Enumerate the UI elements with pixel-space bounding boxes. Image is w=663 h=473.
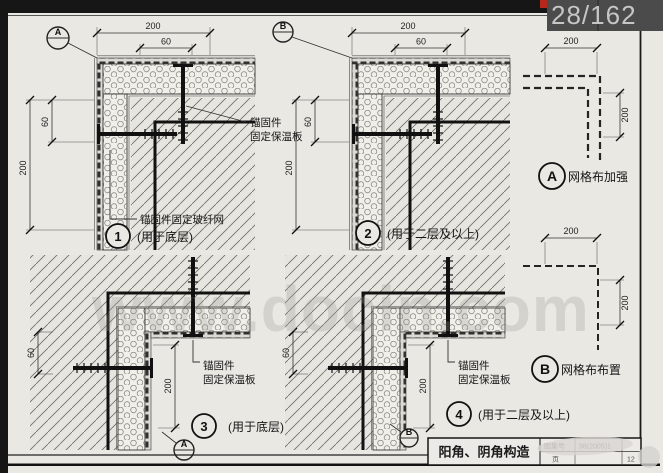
- d1-number-marker: 1: [106, 224, 130, 248]
- d3-dim-mid: 200: [153, 341, 180, 432]
- d3-callout-marker: A: [162, 432, 194, 460]
- titleblock-page-label: 页: [552, 456, 559, 464]
- d3-number-marker: 3: [192, 414, 216, 438]
- svg-text:60: 60: [281, 348, 291, 358]
- detail-4: 60 200 锚固件 固定保温板 4 (用于二层及以上): [281, 255, 570, 450]
- detail-1: A 200 60: [18, 21, 303, 250]
- svg-text:锚固件: 锚固件: [203, 359, 235, 372]
- mesh-a-marker: A: [539, 163, 565, 189]
- d4-annotation-anchor: 锚固件 固定保温板: [448, 340, 511, 386]
- svg-text:200: 200: [620, 295, 630, 310]
- d4-caption: (用于二层及以上): [478, 408, 570, 422]
- d3-annotation-anchor: 锚固件 固定保温板: [193, 340, 256, 386]
- d2-number: 2: [364, 226, 371, 241]
- d2-dim-top-inner: 60: [391, 37, 451, 56]
- d4-callout-letter: B: [406, 427, 413, 437]
- svg-text:60: 60: [161, 37, 171, 47]
- svg-text:200: 200: [418, 378, 428, 393]
- d3-callout-letter: A: [181, 439, 188, 449]
- mesh-detail-b: 200 200 B 网格布布置: [523, 226, 630, 382]
- scan-edge-strip: [0, 0, 8, 473]
- d4-number-marker: 4: [447, 402, 471, 426]
- svg-text:200: 200: [400, 21, 415, 31]
- mesh-b-marker: B: [532, 356, 558, 382]
- d2-caption: (用于二层及以上): [387, 227, 479, 241]
- scan-smudge-2: [638, 446, 660, 468]
- d2-number-marker: 2: [356, 221, 380, 245]
- d3-number: 3: [200, 419, 207, 434]
- svg-text:200: 200: [18, 160, 28, 175]
- d1-dim-left: 200: [18, 96, 94, 234]
- d2-callout-letter: B: [280, 21, 287, 31]
- svg-text:200: 200: [163, 378, 173, 393]
- d1-callout-marker: A: [47, 27, 97, 58]
- d2-callout-marker: B: [273, 21, 352, 58]
- svg-text:60: 60: [40, 117, 50, 127]
- title-block: 阳角、阴角构造 图集号 98(2005)1 页 12: [428, 435, 660, 468]
- red-corner-mark: [540, 0, 547, 8]
- svg-text:锚固件固定玻纤网: 锚固件固定玻纤网: [140, 213, 224, 226]
- svg-text:60: 60: [26, 348, 36, 358]
- svg-text:60: 60: [416, 37, 426, 47]
- svg-text:锚固件: 锚固件: [458, 359, 490, 372]
- page-counter: 28/162: [551, 0, 661, 31]
- mesh-a-dim-right: 200: [603, 89, 630, 141]
- mesh-a-label: 网格布加强: [568, 169, 628, 184]
- mesh-b-dim-top: 200: [541, 226, 601, 264]
- d2-dim-top: 200: [348, 21, 469, 55]
- mesh-a-dim-top: 200: [541, 36, 601, 74]
- svg-text:60: 60: [303, 117, 313, 127]
- d1-caption: (用于底层): [137, 229, 193, 244]
- svg-text:200: 200: [145, 21, 160, 31]
- d1-dim-top: 200: [93, 21, 214, 55]
- mesh-b-label: 网格布布置: [561, 362, 621, 377]
- svg-text:200: 200: [563, 36, 578, 46]
- svg-text:固定保温板: 固定保温板: [250, 130, 303, 143]
- svg-text:固定保温板: 固定保温板: [458, 373, 511, 386]
- d3-caption: (用于底层): [228, 419, 284, 434]
- titleblock-title: 阳角、阴角构造: [438, 445, 530, 460]
- detail-2: B 200 60: [273, 21, 510, 250]
- svg-text:200: 200: [620, 107, 630, 122]
- d2-dim-left-inner: 60: [303, 96, 349, 146]
- svg-text:200: 200: [563, 226, 578, 236]
- svg-text:固定保温板: 固定保温板: [203, 373, 256, 386]
- detail-3: 60 200 锚固件 固定保温板 3 (用于底层): [26, 255, 284, 460]
- d1-callout-letter: A: [55, 27, 62, 37]
- d1-dim-left-inner: 60: [40, 96, 94, 146]
- drawing-canvas: A 200 60: [0, 0, 663, 473]
- mesh-a-letter: A: [547, 168, 557, 184]
- d4-dim-mid: 200: [408, 341, 435, 432]
- svg-text:锚固件: 锚固件: [250, 116, 282, 129]
- svg-text:200: 200: [284, 160, 294, 175]
- mesh-b-letter: B: [540, 361, 550, 377]
- document-page: A 200 60: [0, 0, 663, 473]
- mesh-detail-a: 200 200 A 网格布加强: [523, 36, 630, 189]
- d1-number: 1: [114, 229, 121, 244]
- mesh-b-dim-right: 200: [600, 276, 630, 329]
- titleblock-page-value: 12: [627, 457, 635, 464]
- d4-number: 4: [455, 407, 463, 422]
- d2-dim-left: 200: [284, 96, 349, 234]
- d1-dim-top-inner: 60: [136, 37, 196, 56]
